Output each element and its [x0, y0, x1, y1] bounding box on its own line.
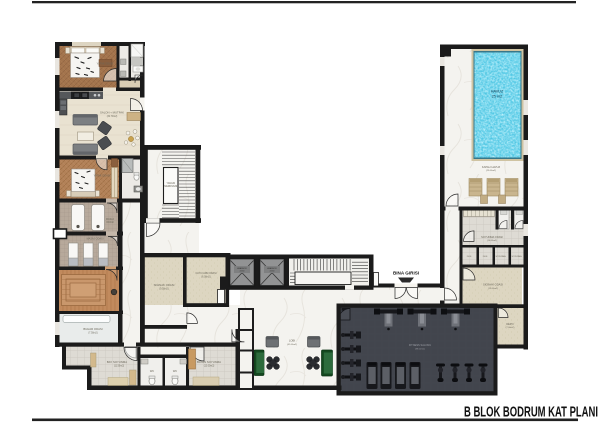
svg-text:BUHAR ODASI: BUHAR ODASI: [83, 327, 102, 331]
svg-text:YATAK ODASI: YATAK ODASI: [94, 174, 111, 178]
svg-text:HAVUZ: HAVUZ: [491, 90, 504, 94]
svg-text:MERDIVENI: MERDIVENI: [164, 186, 177, 188]
svg-text:YANGIN: YANGIN: [166, 182, 175, 185]
svg-text:BAYAN SOYUNMA: BAYAN SOYUNMA: [197, 360, 221, 364]
svg-text:(98.00m2): (98.00m2): [415, 348, 425, 350]
svg-text:DEPO: DEPO: [506, 322, 513, 326]
svg-text:(7.50m2): (7.50m2): [88, 333, 97, 335]
svg-text:(7.00m2): (7.00m2): [506, 327, 515, 329]
svg-text:(6.00m2): (6.00m2): [201, 277, 210, 279]
svg-text:DUS: DUS: [467, 256, 472, 258]
svg-text:SOYUNMA ODASI: SOYUNMA ODASI: [481, 235, 503, 239]
svg-text:SOYUNMA: SOYUNMA: [495, 255, 506, 258]
svg-text:(12.00m2): (12.00m2): [204, 366, 215, 368]
svg-text:MASAJ ODASI: MASAJ ODASI: [87, 238, 104, 241]
svg-text:24.60: 24.60: [240, 271, 245, 273]
svg-text:DUS: DUS: [483, 256, 488, 258]
svg-text:25 m2: 25 m2: [492, 95, 503, 99]
svg-text:SALON + MUTFAK: SALON + MUTFAK: [100, 111, 124, 115]
svg-text:YATAK ODASI: YATAK ODASI: [97, 62, 114, 66]
svg-text:(11.50m2): (11.50m2): [114, 366, 125, 368]
svg-text:24.60: 24.60: [270, 271, 275, 273]
svg-text:ASANSOR: ASANSOR: [237, 267, 247, 270]
svg-text:(32.70m2): (32.70m2): [107, 116, 118, 118]
svg-text:BAY SOYUNMA: BAY SOYUNMA: [107, 360, 127, 364]
svg-text:KAPALI HAVUZ: KAPALI HAVUZ: [482, 165, 501, 169]
svg-text:(25.00m2): (25.00m2): [486, 170, 496, 172]
svg-text:WC: WC: [150, 369, 154, 373]
svg-text:(14.00m2): (14.00m2): [487, 240, 497, 242]
svg-text:SIGINAK ODASI: SIGINAK ODASI: [154, 283, 175, 287]
svg-text:BINA GIRISI: BINA GIRISI: [393, 271, 419, 276]
svg-text:(41.00m2): (41.00m2): [287, 344, 297, 346]
svg-text:SOYUNMA: SOYUNMA: [511, 255, 522, 258]
svg-text:B BLOK BODRUM KAT PLANI: B BLOK BODRUM KAT PLANI: [464, 405, 598, 421]
svg-text:(9.50m2): (9.50m2): [159, 289, 168, 291]
svg-text:WC: WC: [173, 369, 177, 373]
svg-text:LOBI: LOBI: [289, 339, 296, 343]
svg-text:CAYCI ADM ODASI: CAYCI ADM ODASI: [195, 272, 216, 275]
svg-text:FITNESS SALONU: FITNESS SALONU: [409, 343, 431, 347]
svg-text:(13.00m2): (13.00m2): [488, 288, 498, 290]
svg-text:SIGINAK ODASI: SIGINAK ODASI: [483, 283, 503, 287]
svg-text:ASANSOR: ASANSOR: [267, 267, 277, 270]
svg-text:ODASI: ODASI: [106, 221, 114, 224]
